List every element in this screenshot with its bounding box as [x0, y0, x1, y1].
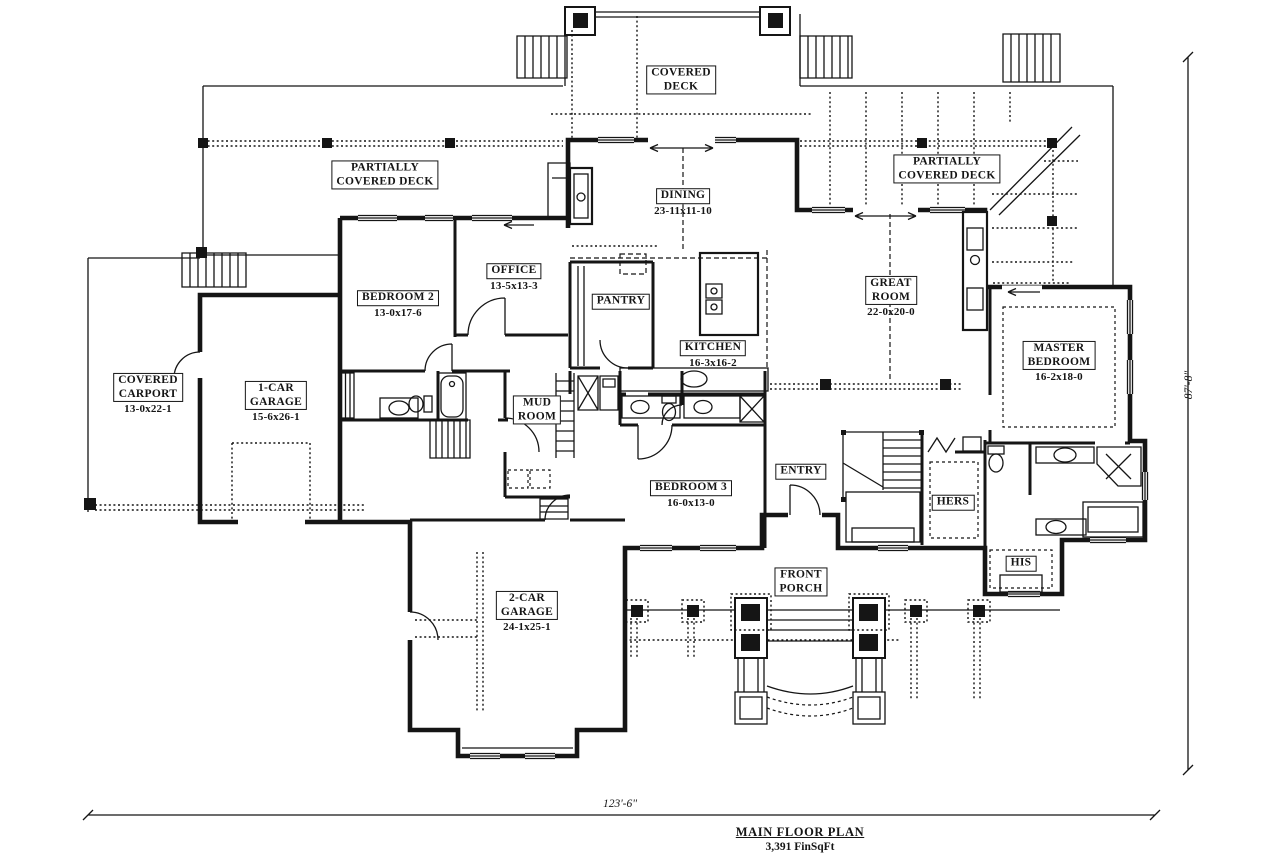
room-dims: 23-11x11-10 — [654, 205, 712, 217]
room-label-dining: DINING23-11x11-10 — [654, 185, 712, 217]
room-name: HIS — [1006, 556, 1037, 572]
room-label-partially-covered-deck-left: PARTIALLY COVERED DECK — [331, 160, 438, 189]
room-name: MASTER BEDROOM — [1023, 341, 1096, 370]
room-label-bedroom-2: BEDROOM 213-0x17-6 — [357, 287, 439, 319]
room-dims: 16-0x13-0 — [650, 497, 732, 509]
room-name: OFFICE — [486, 263, 541, 279]
room-label-pantry: PANTRY — [592, 291, 650, 310]
room-name: BEDROOM 2 — [357, 290, 439, 306]
height-dimension-text: 87'-8" — [1183, 371, 1195, 399]
room-name: COVERED CARPORT — [113, 373, 183, 402]
plan-area: 3,391 FinSqFt — [736, 841, 864, 853]
room-dims: 22-0x20-0 — [865, 306, 917, 318]
walls-interior — [340, 218, 1130, 548]
room-name: PANTRY — [592, 294, 650, 310]
walls-exterior — [200, 140, 1145, 756]
room-label-great-room: GREAT ROOM22-0x20-0 — [865, 276, 917, 318]
room-name: MUD ROOM — [513, 395, 561, 424]
width-dimension-text: 123'-6" — [603, 798, 637, 810]
room-dims: 13-5x13-3 — [486, 280, 541, 292]
plan-title: MAIN FLOOR PLAN — [736, 825, 864, 840]
front-porch-structure — [625, 594, 1060, 724]
title-block: MAIN FLOOR PLAN 3,391 FinSqFt — [736, 825, 864, 853]
room-name: PARTIALLY COVERED DECK — [331, 160, 438, 189]
room-name: 2-CAR GARAGE — [496, 591, 558, 620]
room-label-covered-carport: COVERED CARPORT13-0x22-1 — [113, 373, 183, 415]
room-label-master-bedroom: MASTER BEDROOM16-2x18-0 — [1023, 341, 1096, 383]
room-name: GREAT ROOM — [865, 276, 917, 305]
room-dims: 13-0x22-1 — [113, 403, 183, 415]
fixtures — [232, 148, 1143, 748]
room-label-bedroom-3: BEDROOM 316-0x13-0 — [650, 477, 732, 509]
room-label-covered-deck: COVERED DECK — [646, 65, 716, 94]
room-label-entry: ENTRY — [775, 461, 826, 480]
deck-structures — [84, 7, 1113, 512]
room-dims: 16-2x18-0 — [1023, 371, 1096, 383]
room-label-partially-covered-deck-right: PARTIALLY COVERED DECK — [893, 154, 1000, 183]
room-name: PARTIALLY COVERED DECK — [893, 154, 1000, 183]
room-label-front-porch: FRONT PORCH — [774, 567, 827, 596]
room-label-1-car-garage: 1-CAR GARAGE15-6x26-1 — [245, 381, 307, 423]
room-name: 1-CAR GARAGE — [245, 381, 307, 410]
room-dims: 16-3x16-2 — [680, 357, 746, 369]
room-label-hers-closet: HERS — [932, 492, 975, 511]
floor-plan-page: COVERED DECK PARTIALLY COVERED DECK PART… — [0, 0, 1280, 853]
windows-and-openings — [174, 138, 1148, 759]
room-label-his-closet: HIS — [1006, 553, 1037, 572]
room-label-2-car-garage: 2-CAR GARAGE24-1x25-1 — [496, 591, 558, 633]
floorplan-drawing — [0, 0, 1280, 853]
room-name: FRONT PORCH — [774, 567, 827, 596]
room-name: HERS — [932, 495, 975, 511]
room-dims: 24-1x25-1 — [496, 621, 558, 633]
room-name: ENTRY — [775, 464, 826, 480]
room-dims: 13-0x17-6 — [357, 307, 439, 319]
room-label-kitchen: KITCHEN16-3x16-2 — [680, 337, 746, 369]
room-name: KITCHEN — [680, 340, 746, 356]
room-label-office: OFFICE13-5x13-3 — [486, 260, 541, 292]
room-name: COVERED DECK — [646, 65, 716, 94]
room-label-mud-room: MUD ROOM — [513, 395, 561, 424]
room-name: BEDROOM 3 — [650, 480, 732, 496]
room-name: DINING — [656, 188, 711, 204]
room-dims: 15-6x26-1 — [245, 411, 307, 423]
